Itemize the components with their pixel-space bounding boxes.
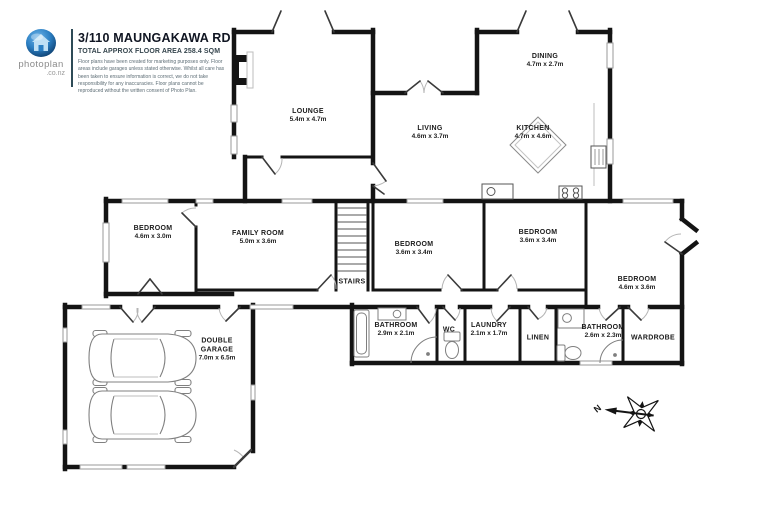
stairs-treads xyxy=(337,208,367,271)
door-leaves xyxy=(120,11,682,467)
floor-plan-page: photoplan .co.nz 3/110 MAUNGAKAWA RD TOT… xyxy=(0,0,768,512)
cars xyxy=(89,331,196,443)
bathroom-fixtures xyxy=(354,308,623,363)
door-arcs xyxy=(133,81,681,458)
north-label: N xyxy=(592,403,603,415)
car-icon xyxy=(89,388,196,443)
fireplace-icon xyxy=(234,52,253,88)
kitchen-fixtures xyxy=(482,103,606,199)
floor-plan-drawing: N xyxy=(0,0,768,512)
compass-rose-icon: N xyxy=(592,372,672,452)
car-icon xyxy=(89,331,196,386)
